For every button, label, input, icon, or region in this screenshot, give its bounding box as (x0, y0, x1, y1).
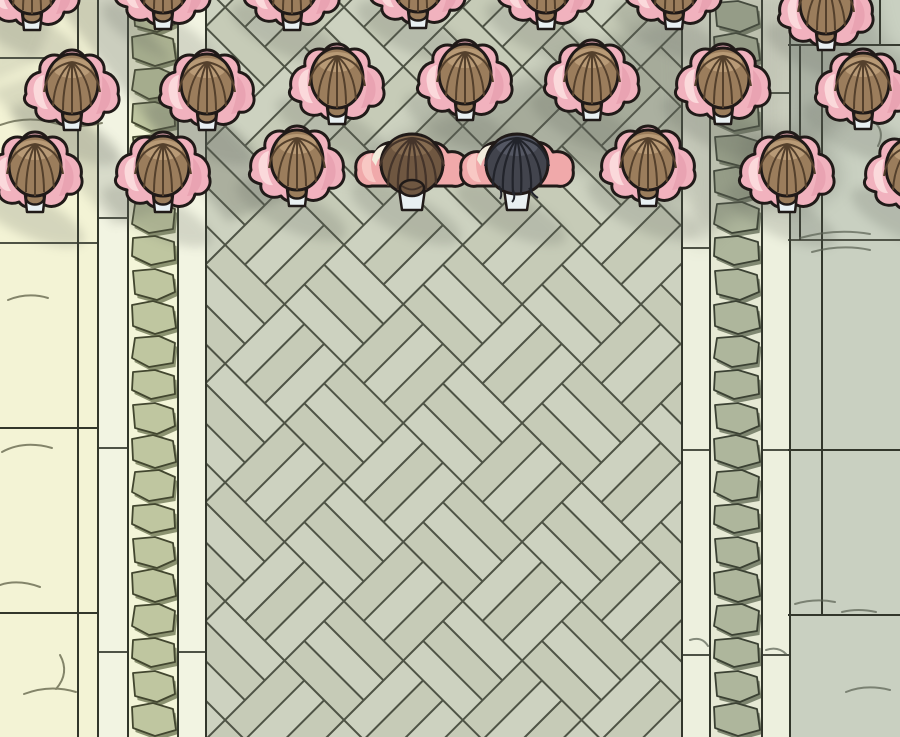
comic-panel (0, 0, 900, 737)
scene-svg (0, 0, 900, 737)
